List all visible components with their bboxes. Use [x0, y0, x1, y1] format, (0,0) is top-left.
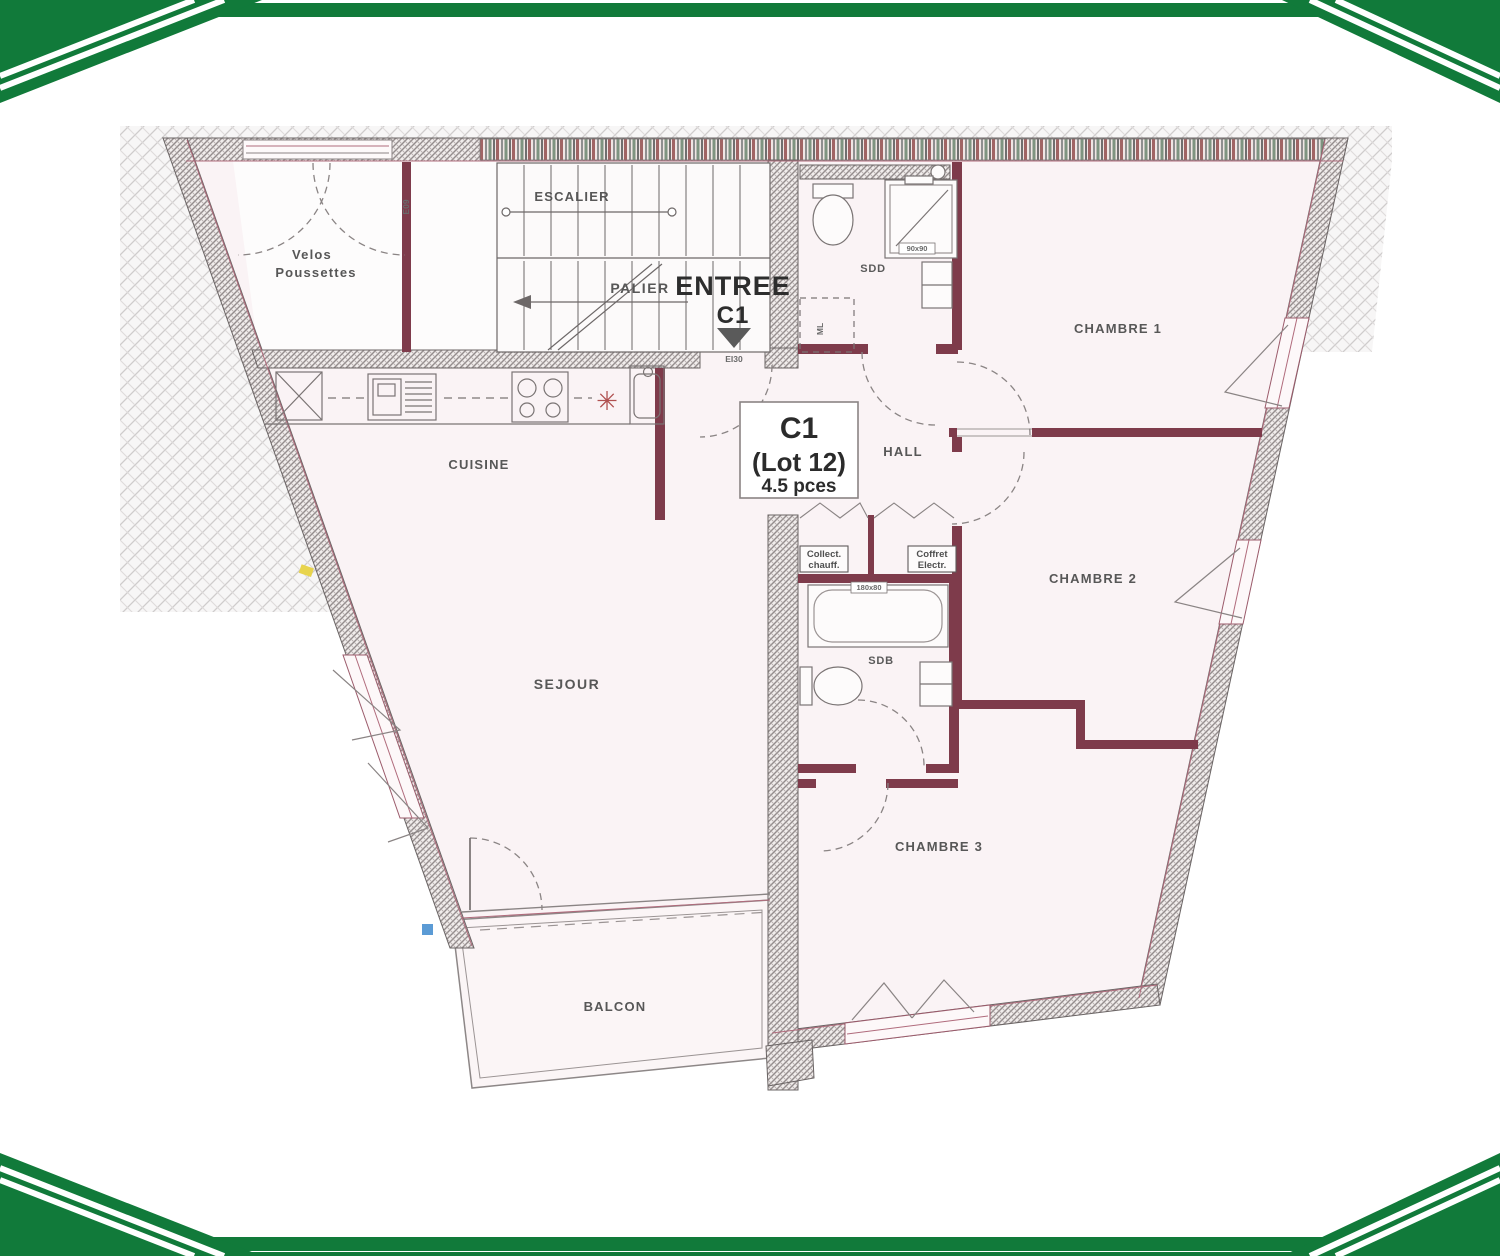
room-label-chambre1: CHAMBRE 1: [1074, 321, 1162, 336]
wall-chambre1-south: [1032, 428, 1262, 437]
room-label-escalier: ESCALIER: [534, 189, 609, 204]
entrance-unit: C1: [717, 302, 750, 329]
frame-corner-top-left: [0, 0, 262, 103]
wall-chambre2-south-a: [952, 700, 1084, 709]
room-label-chambre3: CHAMBRE 3: [895, 839, 983, 854]
bath-size-label: 180x80: [856, 583, 881, 592]
wall-chambre1-south-stub: [949, 428, 957, 437]
wall-spine-upper: [768, 160, 798, 365]
room-label-balcon: BALCON: [584, 999, 647, 1014]
frame-corner-bottom-right: [1282, 1153, 1500, 1256]
unit-box-line2: (Lot 12): [752, 447, 846, 477]
door-tag-label: E09: [401, 199, 411, 214]
label-ml: ML: [815, 323, 825, 335]
toilet-icon: [813, 195, 853, 245]
room-label-hall: HALL: [883, 444, 922, 459]
wall-velos-east: [402, 162, 411, 352]
closet-label-coffret-1: Coffret: [916, 549, 948, 560]
floor-plan-page: ✳: [0, 0, 1500, 1256]
room-label-chambre2: CHAMBRE 2: [1049, 571, 1137, 586]
closet-label-collect-2: chauff.: [808, 560, 839, 571]
unit-box-line1: C1: [780, 412, 818, 445]
wall-sdd-south-a: [798, 344, 868, 354]
wall-chambre3-north-a: [798, 779, 816, 788]
fire-rating-label: EI30: [725, 354, 743, 364]
wall-closet-divider: [868, 515, 874, 577]
bathtub-icon: [808, 585, 948, 647]
frame-corner-bottom-left: [0, 1153, 262, 1256]
room-label-sdb: SDB: [868, 655, 894, 667]
window-top-velos: [243, 140, 392, 159]
wall-top-insulation: [480, 139, 1345, 160]
toilet-tank-sdb: [800, 667, 812, 705]
room-label-sdd: SDD: [860, 263, 886, 275]
wall-palier-kitchen: [252, 350, 700, 368]
balcony-pillar: [766, 1040, 814, 1086]
unit-box-line3: 4.5 pces: [762, 476, 837, 497]
wall-sdb-south-a: [798, 764, 856, 773]
toilet-sdb-icon: [814, 667, 862, 705]
closet-label-coffret-2: Electr.: [918, 560, 947, 571]
entrance-title: ENTREE: [675, 271, 791, 301]
floor-plan-svg: ✳: [0, 0, 1500, 1256]
room-label-cuisine: CUISINE: [448, 457, 509, 472]
wall-chambre2-west-a: [952, 437, 962, 452]
room-label-sejour: SEJOUR: [534, 676, 601, 692]
radiator-asterisk-icon: ✳: [596, 386, 618, 416]
room-label-palier: PALIER: [610, 280, 669, 296]
wall-chambre2-south-b: [1076, 740, 1198, 749]
closet-label-collect-1: Collect.: [807, 549, 841, 560]
room-label-velos-1: Velos: [292, 247, 332, 262]
wall-chambre3-north-b: [886, 779, 958, 788]
blue-marker: [422, 924, 433, 935]
shower-size-label: 90x90: [907, 244, 928, 253]
wall-spine-lower: [768, 515, 798, 1090]
room-label-velos-2: Poussettes: [275, 265, 356, 280]
